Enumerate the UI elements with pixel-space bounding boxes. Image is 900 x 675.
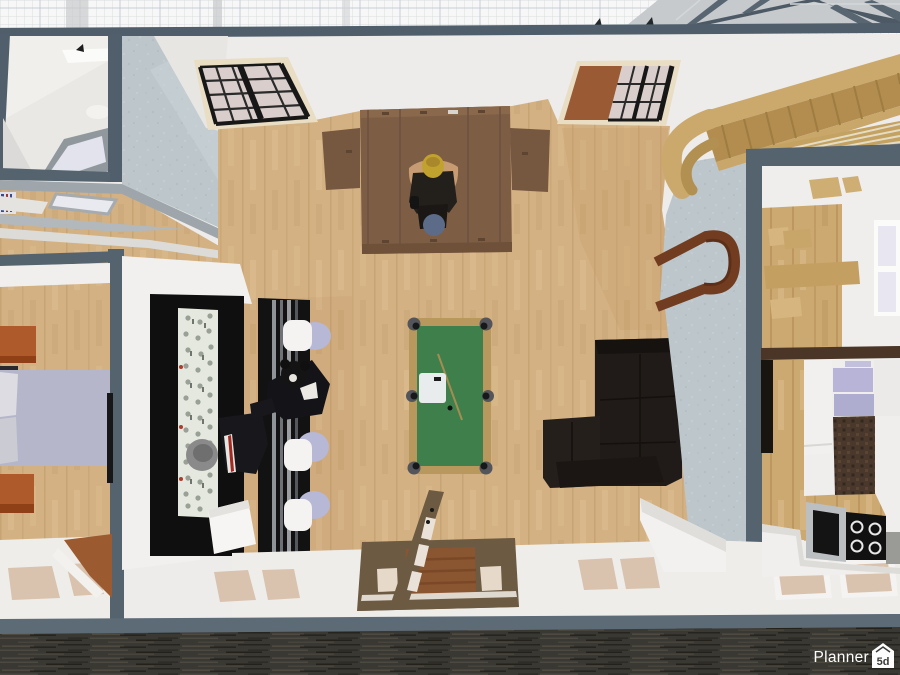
svg-text:Planner: Planner	[813, 649, 869, 666]
svg-text:5d: 5d	[877, 656, 890, 668]
